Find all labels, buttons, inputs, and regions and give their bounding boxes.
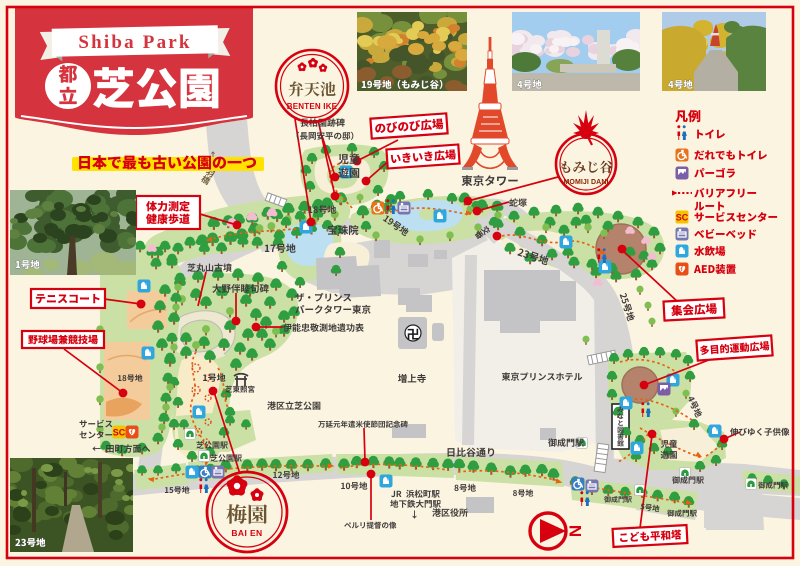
svg-text:N: N — [566, 525, 585, 537]
svg-text:Shiba Park: Shiba Park — [78, 32, 191, 53]
svg-text:MOMIJI DANI: MOMIJI DANI — [563, 179, 608, 186]
svg-text:BENTEN IKE: BENTEN IKE — [287, 102, 338, 111]
svg-text:BAI EN: BAI EN — [231, 528, 262, 538]
